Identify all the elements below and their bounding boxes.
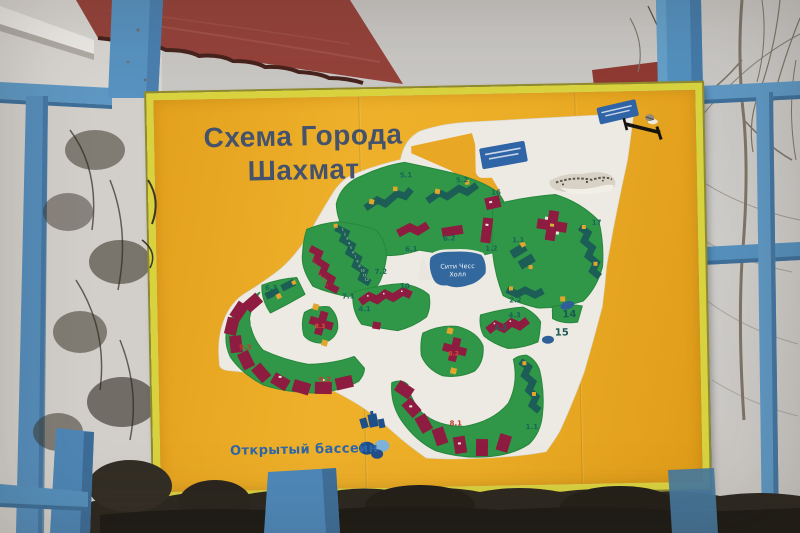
block-label: 8.2 [448,350,459,357]
pool-label: Открытый бассейн [230,441,378,459]
block-label: 7.2 [375,268,388,276]
svg-text:7: 7 [354,255,356,259]
svg-text:2: 2 [344,232,346,236]
block-label: 1.1 [512,236,525,244]
block-label: 10 [400,282,410,290]
photo-scene: 12 34 56 78 910 1112 12 34 56 78 910 111… [0,0,800,533]
svg-text:12: 12 [324,283,328,287]
block-label: 7.1 [342,292,355,300]
svg-text:10: 10 [361,269,365,273]
svg-text:1: 1 [342,228,344,232]
svg-text:4: 4 [348,241,350,245]
block-label: 4.1 [358,305,371,313]
block-label: 4.3 [508,311,521,319]
block-label: 15 [555,327,569,338]
wire [700,34,800,118]
block-label: 16 [491,189,501,197]
block-label: 5.2 [456,176,469,184]
svg-text:6: 6 [352,250,354,254]
billboard-title-line2: Шахмат [180,151,427,190]
block-label: 1.1 [526,423,539,431]
svg-text:12: 12 [365,278,369,282]
billboard-post-left [108,0,163,98]
billboard: 12 34 56 78 910 1112 12 34 56 78 910 111… [146,83,710,500]
svg-text:11: 11 [363,273,367,277]
block-label: 17 [592,219,602,227]
block-label: 6.2 [443,234,456,242]
svg-text:3: 3 [346,237,348,241]
svg-text:9: 9 [358,264,360,268]
block-label: 1.2 [485,245,498,253]
block-label: 4.3 [495,323,508,331]
block-label: 2.2 [509,296,522,304]
billboard-title-line1: Схема Города [180,117,427,156]
block-label: 8.3 [315,323,326,330]
block-label: 8.1 [449,419,462,427]
lake-label: Холл [449,270,466,278]
block-label: 6.3 [265,284,278,292]
open-pool: Открытый бассейн [229,410,389,461]
svg-text:8: 8 [356,260,358,264]
block-label: 6.1 [405,245,418,253]
block-label: 14 [562,309,576,320]
block-label: 9.2 [319,376,332,384]
block-label: 9.3 [239,343,252,351]
svg-text:5: 5 [350,246,352,250]
billboard-title: Схема Города Шахмат [180,117,427,190]
